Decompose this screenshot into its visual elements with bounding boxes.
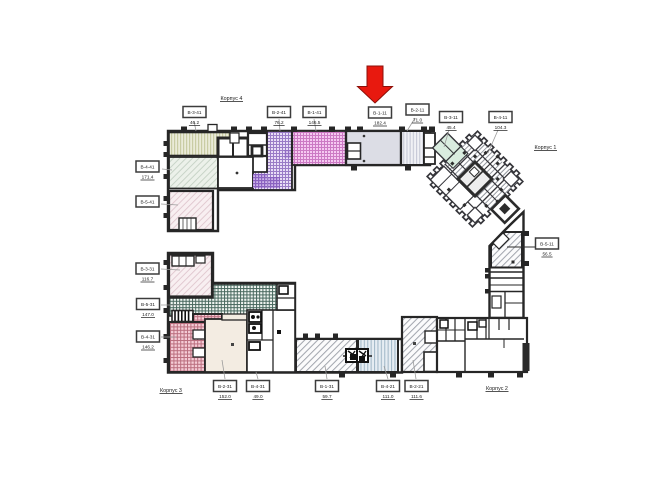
svg-text:116.7: 116.7: [142, 277, 154, 282]
svg-text:147.0: 147.0: [142, 312, 154, 317]
svg-text:104.3: 104.3: [495, 125, 507, 130]
svg-text:В-1-31: В-1-31: [320, 384, 334, 389]
svg-text:В-5-41: В-5-41: [140, 199, 154, 204]
svg-text:В-1-11: В-1-11: [373, 110, 387, 115]
svg-text:Корпус 3: Корпус 3: [160, 388, 182, 394]
svg-text:76.2: 76.2: [274, 120, 284, 125]
svg-text:В-5-31: В-5-31: [141, 302, 155, 307]
svg-text:В-3-11: В-3-11: [444, 115, 458, 120]
svg-text:В-3-31: В-3-31: [140, 266, 154, 271]
svg-text:152.0: 152.0: [219, 394, 231, 399]
svg-text:В-4-21: В-4-21: [381, 384, 395, 389]
svg-text:В-4-41: В-4-41: [140, 164, 154, 169]
svg-text:111.0: 111.0: [382, 394, 393, 399]
svg-text:46.2: 46.2: [190, 120, 200, 125]
svg-text:В-2-31: В-2-31: [218, 384, 232, 389]
svg-text:В-4-31: В-4-31: [251, 384, 265, 389]
svg-text:146.5: 146.5: [309, 120, 321, 125]
svg-text:56.5: 56.5: [542, 252, 552, 257]
svg-text:111.6: 111.6: [411, 394, 422, 399]
svg-text:Корпус 2: Корпус 2: [486, 386, 508, 392]
svg-text:В-2-41: В-2-41: [272, 110, 286, 115]
svg-text:45.4: 45.4: [446, 125, 456, 130]
svg-text:146.2: 146.2: [142, 345, 154, 350]
svg-text:71.0: 71.0: [413, 118, 423, 123]
svg-text:В-4-11: В-4-11: [494, 115, 508, 120]
svg-text:59.7: 59.7: [322, 394, 332, 399]
svg-text:В-2-11: В-2-11: [411, 107, 425, 112]
svg-text:171.4: 171.4: [142, 175, 154, 180]
svg-text:182.4: 182.4: [374, 121, 386, 126]
svg-text:В-5-11: В-5-11: [540, 241, 554, 246]
svg-text:В-2-21: В-2-21: [409, 384, 423, 389]
svg-text:В-1-41: В-1-41: [307, 110, 321, 115]
svg-text:49.0: 49.0: [253, 394, 263, 399]
svg-text:Корпус 4: Корпус 4: [221, 96, 243, 102]
svg-text:В-3-41: В-3-41: [187, 110, 201, 115]
svg-text:В-4-31: В-4-31: [141, 334, 155, 339]
svg-text:Корпус 1: Корпус 1: [535, 145, 557, 151]
